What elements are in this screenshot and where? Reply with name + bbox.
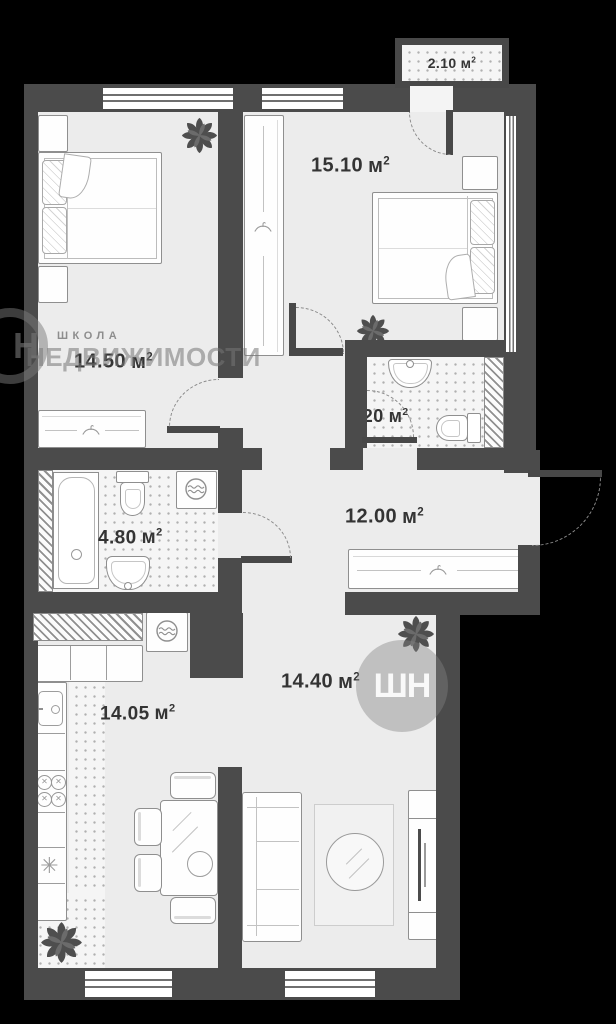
rail-line	[457, 570, 521, 571]
faucet-dot	[406, 360, 414, 368]
glass-line	[172, 812, 191, 831]
blanket-line	[379, 248, 467, 249]
rail-line	[263, 256, 264, 346]
nightstand	[462, 307, 498, 341]
wall	[24, 592, 242, 613]
tv-bracket	[424, 843, 426, 887]
watermark-logo-circle: ШН	[356, 640, 448, 732]
sofa-armrest-line	[247, 807, 299, 808]
counter-divider	[34, 812, 65, 813]
vent-shaft	[33, 613, 143, 641]
stove-burner-icon: ✕	[51, 792, 66, 807]
tv-screen	[418, 829, 421, 901]
area-unit: м2	[402, 506, 424, 528]
wardrobe	[38, 410, 146, 448]
chair-backrest	[174, 916, 211, 919]
basin-inner	[111, 561, 146, 584]
sofa	[242, 792, 302, 942]
cabinet-divider	[106, 646, 107, 680]
window	[103, 88, 233, 109]
tub-inner	[58, 477, 95, 584]
bed	[38, 152, 162, 264]
washing-machine-icon	[181, 474, 211, 504]
wall	[24, 84, 38, 1000]
bed	[372, 192, 498, 304]
wall	[504, 357, 536, 450]
watermark-nedvizhimosti: НЕДВИЖИМОСТИ	[26, 342, 261, 373]
door-split-line	[277, 120, 278, 352]
wall	[218, 558, 242, 592]
nightstand	[38, 266, 68, 303]
rail-line	[357, 570, 421, 571]
balcony: 2.10м2	[395, 38, 509, 88]
pillow	[470, 200, 495, 245]
wall	[38, 448, 262, 470]
wall	[218, 470, 242, 513]
sofa-seat-divider	[256, 841, 299, 842]
toilet	[436, 413, 482, 444]
rail-line	[105, 430, 139, 431]
sofa-seat-divider	[256, 889, 299, 890]
tv-stand	[408, 790, 438, 940]
wall	[417, 448, 504, 470]
counter-divider	[34, 770, 65, 771]
wall	[330, 448, 345, 470]
kitchen-upper-cabinets	[33, 645, 143, 682]
tub-drain	[71, 549, 82, 560]
stove-burner-icon: ✕	[37, 775, 52, 790]
area-value: 14.40	[281, 671, 333, 693]
window	[262, 88, 343, 109]
area-value: 15.10	[311, 155, 363, 177]
room-label-living-room: 14.40м2	[281, 671, 360, 692]
door-leaf	[362, 437, 417, 443]
counter-divider	[34, 847, 65, 848]
toilet	[116, 471, 150, 518]
corner-cabinet-icon: ✳	[34, 849, 65, 882]
nightstand	[38, 115, 68, 152]
chair	[170, 772, 216, 799]
bowl-inner	[441, 420, 460, 437]
dining-table	[160, 800, 218, 896]
hanger-icon	[428, 563, 448, 576]
glass-line	[349, 858, 370, 879]
chair-backrest	[174, 776, 211, 779]
entrance-door-leaf	[528, 470, 602, 477]
watermark-school: ШКОЛА	[57, 330, 121, 342]
room-label-balcony: 2.10м2	[402, 45, 502, 81]
window	[506, 116, 516, 352]
sofa-backrest-line	[256, 797, 257, 936]
wardrobe	[244, 115, 284, 356]
counter-divider	[34, 733, 65, 734]
sofa-armrest-line	[247, 925, 299, 926]
area-unit: м2	[155, 703, 176, 724]
area-value: 12.00	[345, 506, 397, 528]
wall	[218, 428, 243, 450]
cabinet-divider	[70, 646, 71, 680]
area-value: 4.80	[98, 527, 137, 548]
wall	[345, 592, 540, 615]
wall	[345, 357, 367, 448]
chair	[170, 897, 216, 924]
stand-divider	[409, 912, 436, 913]
chair-backrest	[138, 812, 141, 841]
area-value: 14.05	[100, 703, 150, 724]
washing-machine-icon	[152, 616, 182, 646]
chair	[134, 854, 162, 892]
hall-wardrobe	[348, 549, 528, 589]
toilet-bowl	[120, 482, 145, 516]
stand-divider	[409, 818, 436, 819]
room-label-bathroom: 4.80м2	[98, 528, 163, 547]
plant-icon	[40, 921, 83, 964]
blanket-line	[68, 208, 156, 209]
wall	[190, 613, 243, 678]
wall	[345, 448, 363, 470]
pillow	[42, 207, 67, 254]
window	[85, 971, 172, 997]
washing-machine	[176, 471, 217, 509]
glass-line	[346, 848, 362, 864]
area-unit: м2	[368, 155, 390, 177]
vent-shaft	[484, 357, 504, 448]
chair	[134, 808, 162, 846]
coffee-table	[326, 833, 384, 891]
room-label-kitchen: 14.05м2	[100, 704, 176, 723]
kitchen-sink	[38, 691, 63, 726]
counter-divider	[34, 883, 65, 884]
balcony-door-opening	[410, 86, 453, 112]
stove-burner-icon: ✕	[37, 792, 52, 807]
hanger-icon	[253, 220, 273, 233]
chair-backrest	[138, 858, 141, 887]
shelf-line	[353, 556, 523, 557]
rail-line	[45, 430, 77, 431]
bathtub	[53, 472, 99, 589]
glass-line	[172, 826, 198, 852]
shelf-line	[42, 416, 141, 417]
stove-burner-icon: ✕	[51, 775, 66, 790]
washing-machine	[146, 612, 188, 652]
nightstand	[462, 156, 498, 190]
faucet-dot	[124, 582, 132, 590]
area-unit: м2	[461, 56, 477, 70]
area-value: 2.10	[428, 56, 457, 70]
toilet-tank	[467, 413, 481, 443]
table-plate	[187, 851, 213, 877]
rail-line	[263, 126, 264, 212]
hanger-icon	[81, 423, 101, 436]
floor-plan: 14.50м2	[0, 0, 616, 1024]
wall	[218, 767, 242, 968]
sink-drain	[51, 705, 60, 714]
vent-shaft	[38, 470, 53, 592]
wall	[218, 112, 243, 378]
plant-icon	[181, 117, 218, 154]
room-label-bedroom-right: 15.10м2	[311, 155, 390, 176]
door-swing-arc	[532, 477, 601, 546]
bowl-inner	[125, 489, 141, 509]
kitchen-counter: ✕ ✕ ✕ ✕ ✳	[33, 682, 67, 921]
area-unit: м2	[142, 527, 163, 548]
toilet-bowl	[436, 415, 468, 441]
door-leaf	[167, 426, 220, 433]
wall	[345, 340, 504, 357]
window	[285, 971, 375, 997]
room-label-hallway: 12.00м2	[345, 506, 424, 527]
watermark-logo-text: ШН	[374, 667, 431, 706]
